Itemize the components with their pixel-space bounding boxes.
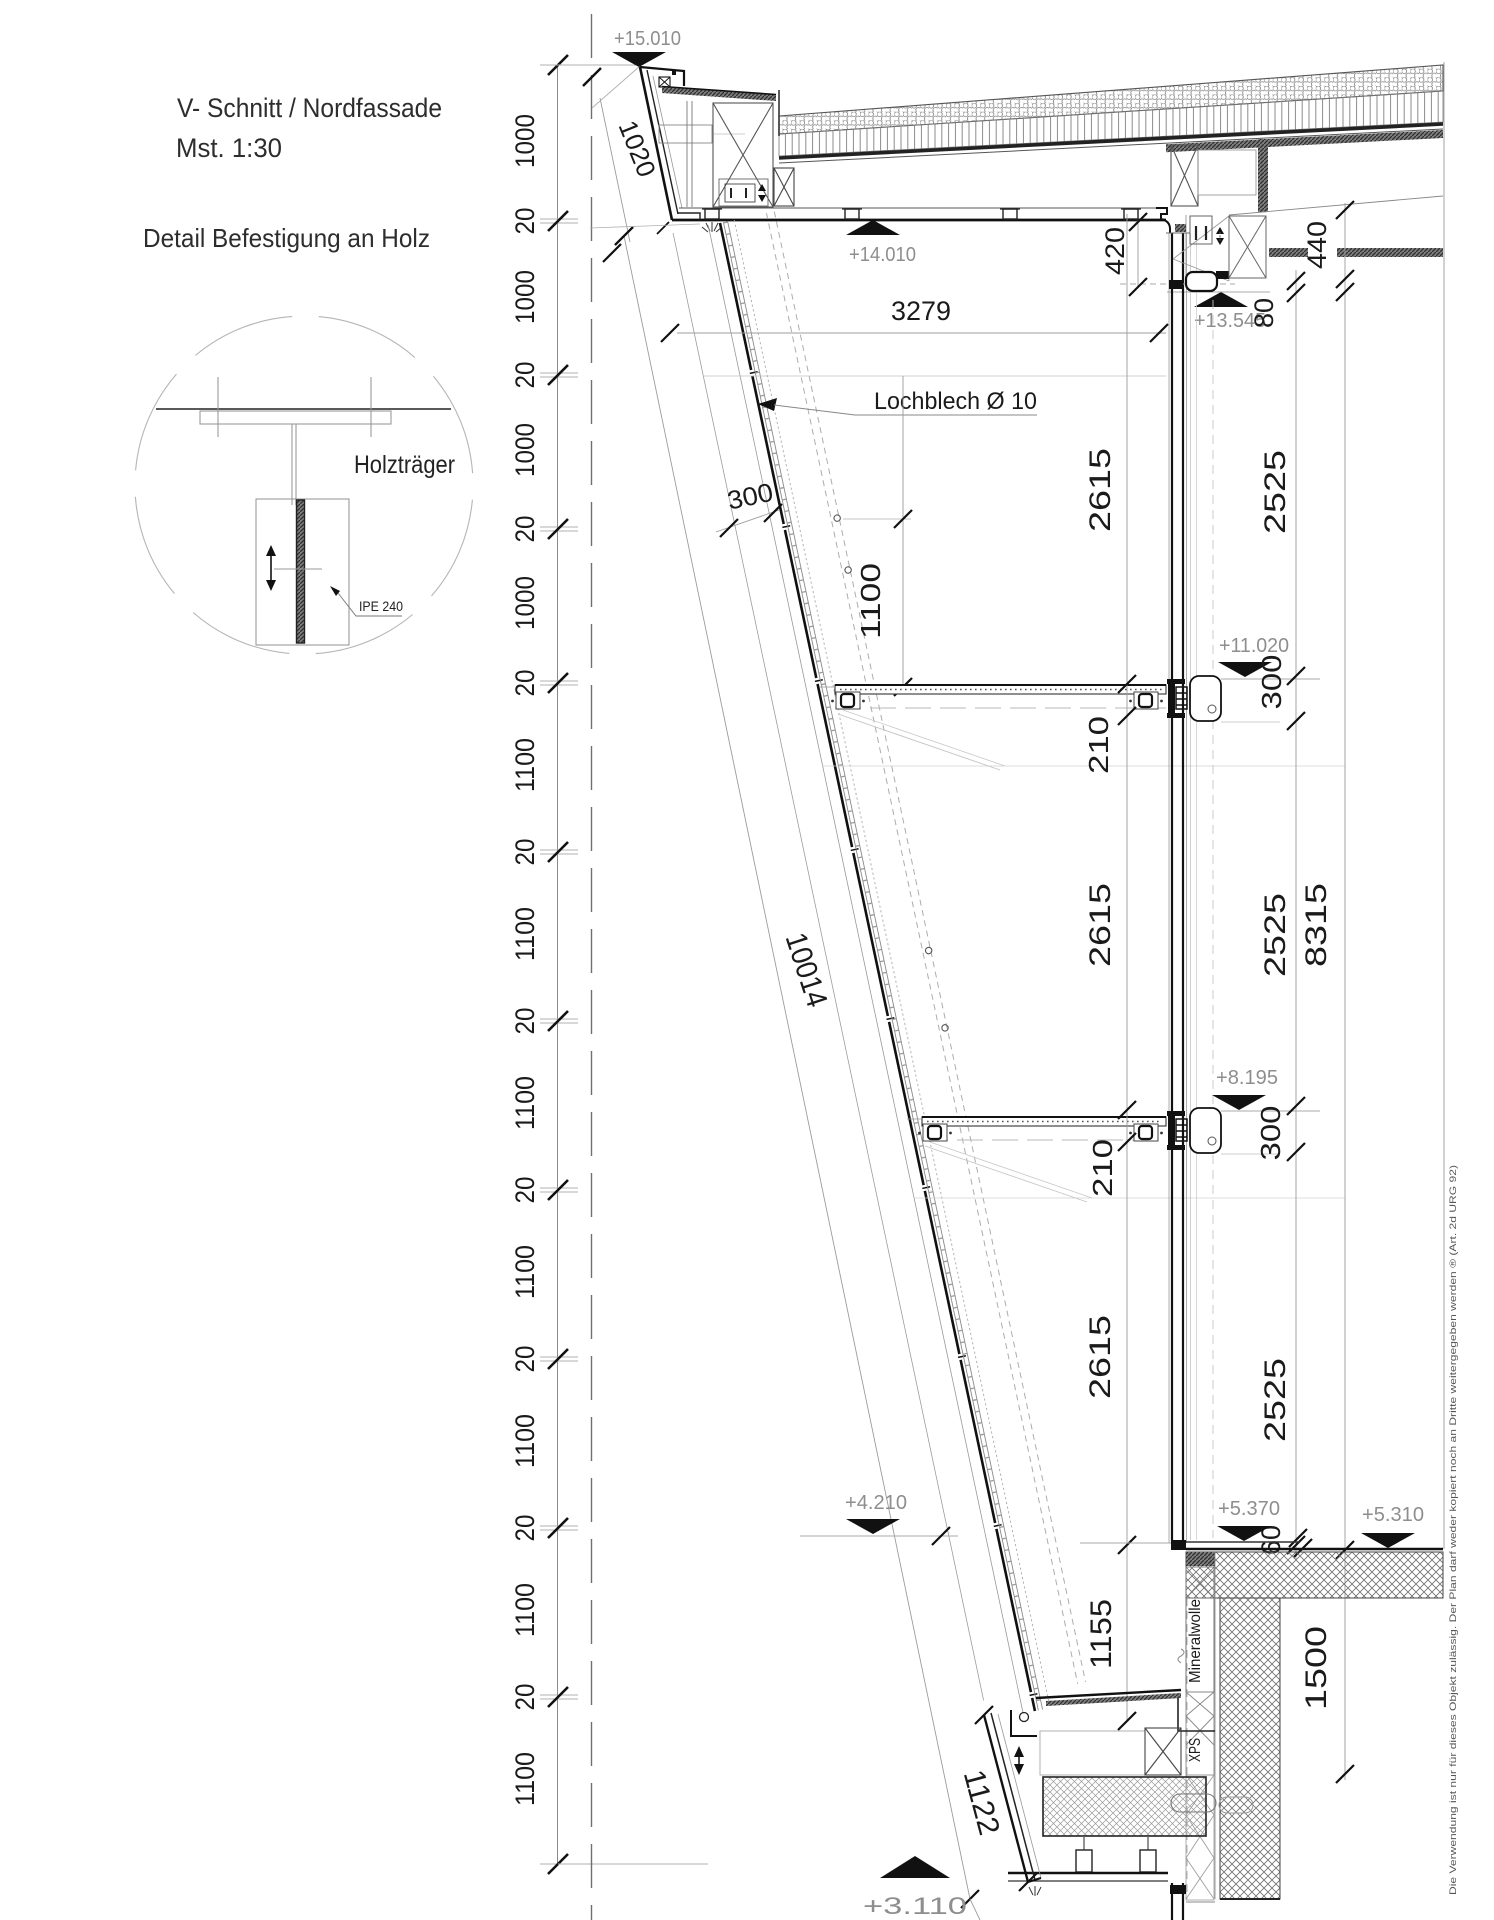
svg-text:Holzträger: Holzträger: [354, 451, 455, 479]
svg-text:+8.195: +8.195: [1216, 1067, 1278, 1089]
svg-text:1100: 1100: [510, 738, 540, 792]
svg-text:2615: 2615: [1084, 883, 1117, 967]
svg-text:420: 420: [1100, 227, 1130, 275]
svg-text:300: 300: [1256, 655, 1287, 710]
svg-text:Die Verwendung ist nur für die: Die Verwendung ist nur für dieses Objekt…: [1448, 1165, 1458, 1895]
svg-text:Detail Befestigung an Holz: Detail Befestigung an Holz: [143, 223, 430, 253]
svg-text:8315: 8315: [1300, 883, 1333, 967]
svg-text:2525: 2525: [1259, 450, 1292, 534]
svg-text:1000: 1000: [510, 423, 540, 477]
svg-text:Mineralwolle: Mineralwolle: [1187, 1599, 1204, 1683]
svg-text:1100: 1100: [510, 1076, 540, 1130]
svg-text:80: 80: [1249, 298, 1279, 328]
svg-text:1155: 1155: [1085, 1599, 1118, 1669]
svg-text:+5.310: +5.310: [1362, 1504, 1424, 1526]
svg-text:210: 210: [1087, 1139, 1118, 1197]
svg-text:2615: 2615: [1084, 448, 1117, 532]
svg-text:IPE 240: IPE 240: [359, 598, 403, 614]
svg-text:20: 20: [510, 1177, 540, 1204]
svg-text:1100: 1100: [855, 563, 886, 639]
svg-text:210: 210: [1083, 716, 1114, 774]
svg-text:20: 20: [510, 516, 540, 543]
svg-text:20: 20: [510, 1008, 540, 1035]
svg-text:1500: 1500: [1300, 1626, 1333, 1710]
svg-text:1100: 1100: [510, 907, 540, 961]
svg-text:+14.010: +14.010: [849, 244, 916, 266]
svg-text:20: 20: [510, 1515, 540, 1542]
svg-text:1100: 1100: [510, 1245, 540, 1299]
svg-text:V- Schnitt / Nordfassade: V- Schnitt / Nordfassade: [177, 93, 442, 123]
svg-text:+15.010: +15.010: [614, 28, 681, 50]
svg-text:440: 440: [1302, 221, 1332, 269]
svg-text:Mst. 1:30: Mst. 1:30: [176, 133, 282, 163]
svg-text:1100: 1100: [510, 1752, 540, 1806]
svg-text:20: 20: [510, 1346, 540, 1373]
svg-text:1100: 1100: [510, 1414, 540, 1468]
svg-text:20: 20: [510, 670, 540, 697]
svg-text:20: 20: [510, 208, 540, 235]
svg-text:1100: 1100: [510, 1583, 540, 1637]
svg-text:+4.210: +4.210: [845, 1492, 907, 1514]
svg-text:+11.020: +11.020: [1219, 635, 1289, 657]
svg-text:20: 20: [510, 1684, 540, 1711]
svg-text:+3.110: +3.110: [863, 1893, 967, 1920]
svg-text:XPS: XPS: [1187, 1738, 1204, 1762]
svg-text:1000: 1000: [510, 114, 540, 168]
svg-text:3279: 3279: [891, 296, 951, 326]
svg-text:+5.370: +5.370: [1218, 1498, 1280, 1520]
svg-text:20: 20: [510, 839, 540, 866]
svg-text:2615: 2615: [1084, 1315, 1117, 1399]
svg-text:Lochblech Ø 10: Lochblech Ø 10: [874, 388, 1037, 415]
svg-text:2525: 2525: [1259, 893, 1292, 977]
svg-text:1000: 1000: [510, 576, 540, 630]
svg-text:1000: 1000: [510, 270, 540, 324]
svg-text:300: 300: [1255, 1106, 1286, 1161]
svg-text:2525: 2525: [1259, 1358, 1292, 1442]
svg-text:20: 20: [510, 362, 540, 389]
